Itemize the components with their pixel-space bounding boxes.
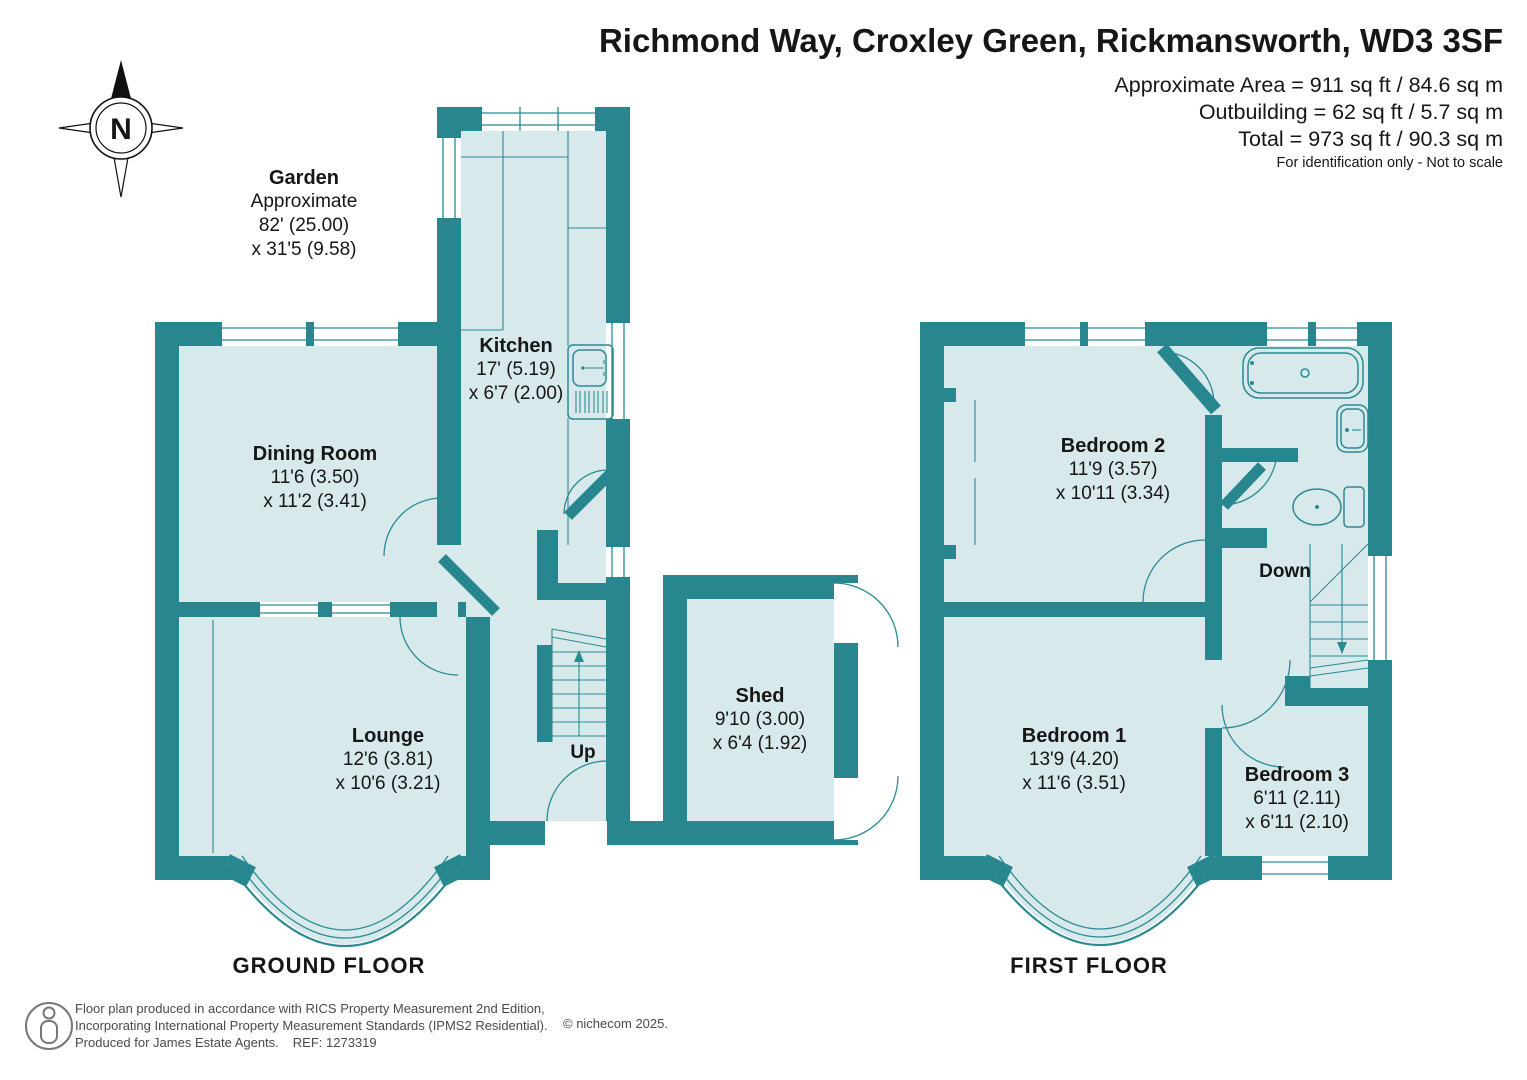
first-floor-plan [920, 322, 1392, 945]
window [1267, 322, 1357, 346]
window [1262, 856, 1328, 880]
footer-disclaimer: Floor plan produced in accordance with R… [75, 1000, 548, 1051]
window [1025, 322, 1145, 346]
room-label-bedroom-3: Bedroom 3 6'11 (2.11) x 6'11 (2.10) [1245, 763, 1349, 835]
room-dim: 11'6 (3.50) [253, 466, 377, 490]
footer-line: Produced for James Estate Agents.REF: 12… [75, 1034, 548, 1051]
room-dim: 13'9 (4.20) [1022, 748, 1126, 772]
room-dim: x 10'6 (3.21) [335, 772, 440, 796]
person-badge-icon [26, 1003, 72, 1049]
garden-name: Garden [251, 166, 358, 190]
room-name: Bedroom 1 [1022, 724, 1126, 748]
approximate-area: Approximate Area = 911 sq ft / 84.6 sq m [1114, 72, 1503, 99]
room-dim: x 6'4 (1.92) [713, 732, 807, 756]
disclaimer-note: For identification only - Not to scale [1277, 155, 1503, 171]
room-label-lounge: Lounge 12'6 (3.81) x 10'6 (3.21) [335, 724, 440, 796]
garden-line: x 31'5 (9.58) [251, 238, 358, 262]
window [606, 323, 630, 419]
room-dim: x 10'11 (3.34) [1056, 482, 1170, 506]
room-label-shed: Shed 9'10 (3.00) x 6'4 (1.92) [713, 684, 807, 756]
room-label-bedroom-1: Bedroom 1 13'9 (4.20) x 11'6 (3.51) [1022, 724, 1126, 796]
footer-line: Incorporating International Property Mea… [75, 1017, 548, 1034]
room-dim: x 11'6 (3.51) [1022, 772, 1126, 796]
compass-north-label: N [110, 113, 132, 147]
window [437, 138, 461, 218]
bay-window-bedroom1 [982, 856, 1218, 945]
room-dim: x 6'11 (2.10) [1245, 811, 1349, 835]
garden-line: Approximate [251, 190, 358, 214]
copyright-note: © nichecom 2025. [563, 1016, 668, 1031]
room-dim: 9'10 (3.00) [713, 708, 807, 732]
outbuilding-area: Outbuilding = 62 sq ft / 5.7 sq m [1114, 99, 1503, 126]
room-name: Lounge [335, 724, 440, 748]
garden-line: 82' (25.00) [251, 214, 358, 238]
room-name: Kitchen [469, 334, 563, 358]
stairs-down-label: Down [1259, 561, 1311, 583]
room-dim: 12'6 (3.81) [335, 748, 440, 772]
page-title: Richmond Way, Croxley Green, Rickmanswor… [599, 22, 1503, 60]
ground-floor-label: GROUND FLOOR [233, 953, 426, 979]
room-label-bedroom-2: Bedroom 2 11'9 (3.57) x 10'11 (3.34) [1056, 434, 1170, 506]
room-dim: x 11'2 (3.41) [253, 490, 377, 514]
stairs-up-label: Up [570, 742, 595, 764]
ground-floor-plan [155, 107, 665, 946]
window [606, 547, 630, 577]
room-name: Shed [713, 684, 807, 708]
room-name: Bedroom 3 [1245, 763, 1349, 787]
room-dim: 6'11 (2.11) [1245, 787, 1349, 811]
garden-note: Garden Approximate 82' (25.00) x 31'5 (9… [251, 166, 358, 262]
floorplan-page: { "header": { "title": "Richmond Way, Cr… [0, 0, 1527, 1080]
first-floor-label: FIRST FLOOR [1010, 953, 1168, 979]
room-dim: 11'9 (3.57) [1056, 458, 1170, 482]
window [222, 322, 398, 346]
room-label-kitchen: Kitchen 17' (5.19) x 6'7 (2.00) [469, 334, 563, 406]
room-name: Dining Room [253, 442, 377, 466]
footer-ref: REF: 1273319 [293, 1035, 377, 1050]
window [1368, 556, 1392, 660]
total-area: Total = 973 sq ft / 90.3 sq m [1114, 126, 1503, 153]
back-door-opening [545, 821, 607, 845]
footer-produced-for: Produced for James Estate Agents. [75, 1035, 279, 1050]
room-dim: 17' (5.19) [469, 358, 563, 382]
room-name: Bedroom 2 [1056, 434, 1170, 458]
window [482, 107, 595, 131]
room-dim: x 6'7 (2.00) [469, 382, 563, 406]
room-label-dining-room: Dining Room 11'6 (3.50) x 11'2 (3.41) [253, 442, 377, 514]
area-summary: Approximate Area = 911 sq ft / 84.6 sq m… [1114, 72, 1503, 153]
footer-line: Floor plan produced in accordance with R… [75, 1000, 548, 1017]
bay-window-lounge [225, 856, 465, 946]
